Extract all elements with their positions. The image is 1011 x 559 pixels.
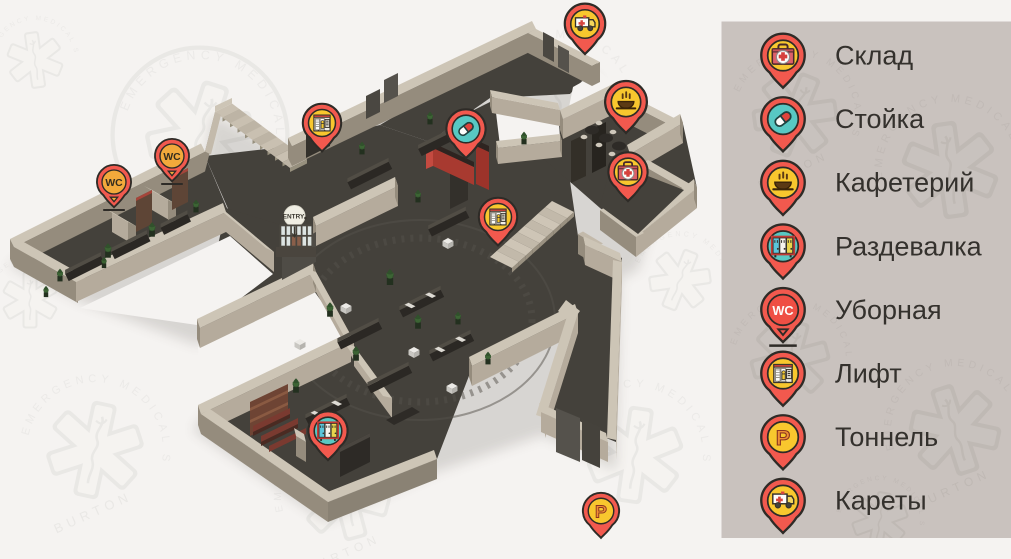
svg-text:Уборная: Уборная bbox=[835, 295, 942, 325]
svg-text:Склад: Склад bbox=[835, 41, 913, 71]
svg-text:Кафетерий: Кафетерий bbox=[835, 168, 974, 198]
svg-text:P: P bbox=[595, 501, 607, 521]
svg-text:Стойка: Стойка bbox=[835, 104, 925, 134]
svg-text:ENTRY: ENTRY bbox=[283, 214, 305, 221]
svg-text:Кареты: Кареты bbox=[835, 486, 927, 516]
svg-text:WC: WC bbox=[105, 178, 123, 189]
svg-text:WC: WC bbox=[163, 152, 181, 163]
svg-text:Лифт: Лифт bbox=[835, 359, 902, 389]
svg-text:Раздевалка: Раздевалка bbox=[835, 231, 983, 261]
svg-text:Тоннель: Тоннель bbox=[835, 422, 938, 452]
svg-text:P: P bbox=[776, 426, 790, 450]
svg-text:WC: WC bbox=[772, 303, 793, 318]
